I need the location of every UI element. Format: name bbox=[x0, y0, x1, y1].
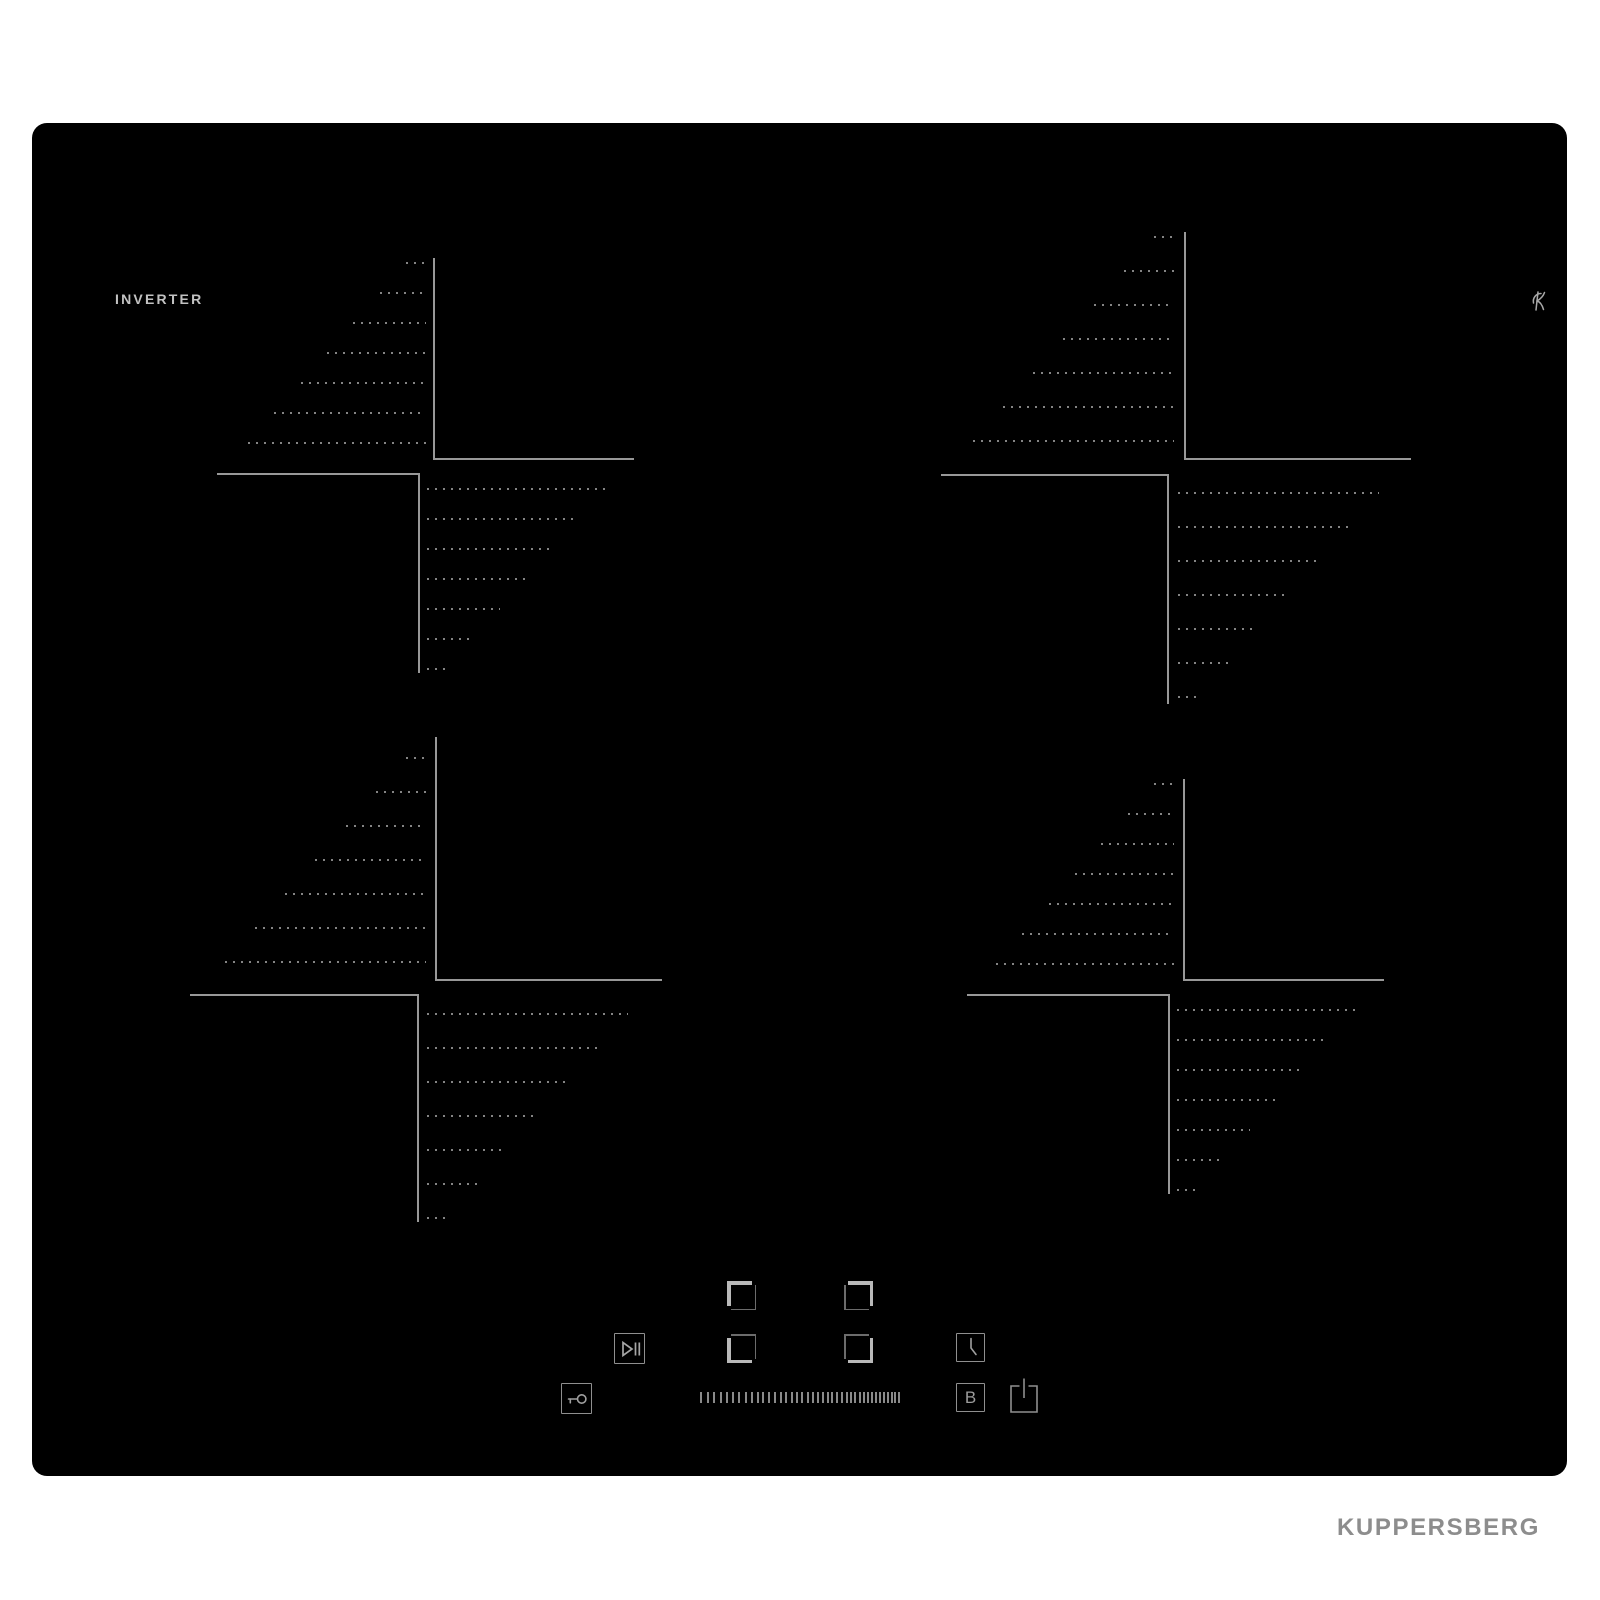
slider-tick bbox=[780, 1392, 782, 1403]
zone-marking-dots bbox=[1177, 1069, 1302, 1071]
slider-tick bbox=[791, 1392, 793, 1403]
key-icon bbox=[563, 1385, 591, 1413]
zone-marking-dots bbox=[1094, 304, 1174, 306]
zone-marking-line bbox=[1183, 779, 1185, 979]
slider-tick bbox=[867, 1392, 869, 1403]
zone-selector-front-left[interactable] bbox=[727, 1334, 756, 1363]
slider-tick bbox=[841, 1392, 843, 1403]
zone-marking-dots bbox=[1075, 873, 1174, 875]
lock-button[interactable] bbox=[561, 1383, 592, 1414]
zone-marking-line bbox=[418, 473, 420, 673]
zone-marking-dots bbox=[1154, 783, 1174, 785]
slider-tick bbox=[850, 1392, 852, 1403]
zone-marking-dots bbox=[427, 1149, 507, 1151]
zone-marking-line bbox=[1184, 458, 1411, 460]
feature-label: INVERTER bbox=[115, 291, 203, 307]
slider-tick bbox=[898, 1392, 900, 1403]
slider-tick bbox=[757, 1392, 759, 1403]
power-icon bbox=[1010, 1377, 1038, 1413]
brand-label: KUPPERSBERG bbox=[1337, 1514, 1540, 1542]
zone-marking-dots bbox=[996, 963, 1174, 965]
slider-tick bbox=[894, 1392, 896, 1403]
slider-tick bbox=[879, 1392, 881, 1403]
slider-tick bbox=[738, 1392, 740, 1403]
zone-marking-dots bbox=[1178, 492, 1379, 494]
slider-tick bbox=[700, 1392, 702, 1403]
zone-marking-line bbox=[1167, 474, 1169, 704]
slider-tick bbox=[801, 1392, 803, 1403]
zone-marking-line bbox=[435, 737, 437, 979]
zone-marking-dots bbox=[1177, 1189, 1197, 1191]
slider-tick bbox=[745, 1392, 747, 1403]
zone-marking-dots bbox=[1124, 270, 1174, 272]
zone-selector-rear-left[interactable] bbox=[727, 1281, 756, 1310]
zone-marking-dots bbox=[301, 382, 426, 384]
zone-marking-dots bbox=[353, 322, 426, 324]
zone-marking-dots bbox=[248, 442, 426, 444]
zone-marking-dots bbox=[380, 292, 426, 294]
zone-marking-dots bbox=[427, 608, 500, 610]
zone-marking-dots bbox=[255, 927, 426, 929]
zone-marking-line bbox=[190, 994, 417, 996]
zone-marking-line bbox=[1168, 994, 1170, 1194]
zone-marking-line bbox=[1184, 232, 1186, 458]
slider-tick bbox=[796, 1392, 798, 1403]
zone-marking-dots bbox=[427, 1115, 538, 1117]
zone-marking-dots bbox=[427, 1013, 628, 1015]
slider-tick bbox=[863, 1392, 865, 1403]
slider-tick bbox=[836, 1392, 838, 1403]
slider-tick bbox=[720, 1392, 722, 1403]
zone-marking-dots bbox=[1049, 903, 1174, 905]
zone-marking-dots bbox=[427, 578, 526, 580]
zone-marking-dots bbox=[346, 825, 426, 827]
zone-marking-line bbox=[1183, 979, 1384, 981]
zone-marking-dots bbox=[427, 638, 473, 640]
slider-tick bbox=[812, 1392, 814, 1403]
play-pause-icon bbox=[616, 1335, 644, 1363]
zone-marking-dots bbox=[1177, 1129, 1250, 1131]
zone-marking-dots bbox=[1178, 696, 1198, 698]
zone-marking-dots bbox=[427, 488, 605, 490]
timer-button[interactable] bbox=[956, 1333, 985, 1362]
zone-marking-dots bbox=[427, 548, 552, 550]
zone-marking-line bbox=[217, 473, 418, 475]
slider-tick bbox=[854, 1392, 856, 1403]
zone-marking-line bbox=[435, 979, 662, 981]
slider-tick bbox=[713, 1392, 715, 1403]
induction-cooktop-surface: INVERTER KUPPERSBERG bbox=[32, 123, 1567, 1476]
slider-tick bbox=[707, 1392, 709, 1403]
slider-tick bbox=[785, 1392, 787, 1403]
booster-label: B bbox=[965, 1389, 976, 1406]
slider-tick bbox=[751, 1392, 753, 1403]
zone-marking-dots bbox=[1178, 662, 1228, 664]
slider-tick bbox=[768, 1392, 770, 1403]
zone-marking-dots bbox=[1178, 628, 1258, 630]
zone-marking-dots bbox=[327, 352, 426, 354]
corner-bottom-left-icon bbox=[727, 1334, 756, 1363]
zone-marking-line bbox=[967, 994, 1168, 996]
zone-marking-dots bbox=[225, 961, 426, 963]
zone-marking-dots bbox=[1178, 526, 1349, 528]
slider-tick bbox=[817, 1392, 819, 1403]
corner-bottom-right-icon bbox=[844, 1334, 873, 1363]
zone-marking-dots bbox=[1063, 338, 1174, 340]
zone-marking-dots bbox=[1178, 560, 1319, 562]
slider-tick bbox=[891, 1392, 893, 1403]
zone-marking-dots bbox=[406, 757, 426, 759]
power-button[interactable] bbox=[1010, 1377, 1038, 1413]
zone-marking-dots bbox=[406, 262, 426, 264]
corner-top-left-icon bbox=[727, 1281, 756, 1310]
slider-tick bbox=[726, 1392, 728, 1403]
corner-top-right-icon bbox=[844, 1281, 873, 1310]
slider-tick bbox=[859, 1392, 861, 1403]
slider-tick bbox=[887, 1392, 889, 1403]
zone-marking-dots bbox=[427, 668, 447, 670]
zone-marking-dots bbox=[1003, 406, 1174, 408]
slider-tick bbox=[732, 1392, 734, 1403]
zone-marking-line bbox=[433, 258, 435, 458]
zone-marking-dots bbox=[1154, 236, 1174, 238]
zone-marking-dots bbox=[973, 440, 1174, 442]
slider-tick bbox=[762, 1392, 764, 1403]
slider-tick bbox=[846, 1392, 848, 1403]
slider-tick bbox=[827, 1392, 829, 1403]
slider-tick bbox=[871, 1392, 873, 1403]
product-photo: INVERTER KUPPERSBERG bbox=[0, 0, 1600, 1600]
slider-tick bbox=[875, 1392, 877, 1403]
zone-marking-line bbox=[433, 458, 634, 460]
zone-marking-dots bbox=[315, 859, 426, 861]
booster-button[interactable]: B bbox=[956, 1383, 985, 1412]
pause-button[interactable] bbox=[614, 1333, 645, 1364]
zone-marking-dots bbox=[1022, 933, 1174, 935]
zone-marking-dots bbox=[274, 412, 426, 414]
zone-marking-dots bbox=[427, 518, 579, 520]
zone-marking-line bbox=[941, 474, 1167, 476]
slider-tick bbox=[822, 1392, 824, 1403]
zone-marking-dots bbox=[1128, 813, 1174, 815]
power-level-slider[interactable] bbox=[700, 1392, 900, 1403]
zone-marking-dots bbox=[1177, 1159, 1223, 1161]
zone-selector-front-right[interactable] bbox=[844, 1334, 873, 1363]
zone-marking-dots bbox=[1177, 1009, 1355, 1011]
zone-marking-dots bbox=[427, 1217, 447, 1219]
zone-marking-line bbox=[417, 994, 419, 1222]
zone-marking-dots bbox=[427, 1081, 568, 1083]
zone-marking-dots bbox=[1177, 1099, 1276, 1101]
zone-marking-dots bbox=[1177, 1039, 1329, 1041]
zone-marking-dots bbox=[1178, 594, 1289, 596]
zone-marking-dots bbox=[427, 1183, 477, 1185]
slider-tick bbox=[774, 1392, 776, 1403]
zone-marking-dots bbox=[1033, 372, 1174, 374]
zone-marking-dots bbox=[427, 1047, 598, 1049]
zone-marking-dots bbox=[285, 893, 426, 895]
slider-tick bbox=[807, 1392, 809, 1403]
zone-selector-rear-right[interactable] bbox=[844, 1281, 873, 1310]
kuppersberg-k-monogram-icon bbox=[1531, 289, 1549, 313]
slider-tick bbox=[883, 1392, 885, 1403]
clock-icon bbox=[958, 1335, 984, 1361]
slider-tick bbox=[831, 1392, 833, 1403]
zone-marking-dots bbox=[1101, 843, 1174, 845]
zone-marking-dots bbox=[376, 791, 426, 793]
